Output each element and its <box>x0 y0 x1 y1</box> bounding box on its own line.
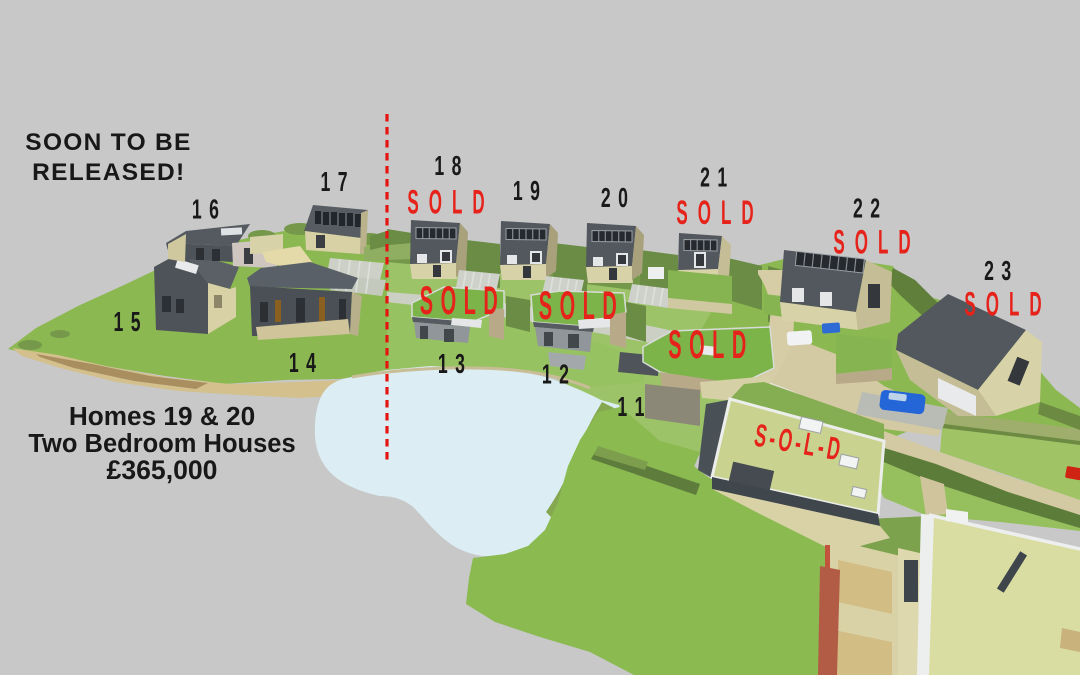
svg-text:SOLD: SOLD <box>833 223 920 261</box>
svg-text:SOLD: SOLD <box>407 183 494 221</box>
svg-text:1 5: 1 5 <box>114 306 142 337</box>
svg-text:1 1: 1 1 <box>617 391 645 422</box>
svg-text:2 0: 2 0 <box>601 182 629 213</box>
svg-text:2 2: 2 2 <box>853 192 881 223</box>
svg-text:Homes 19 & 20: Homes 19 & 20 <box>69 401 255 431</box>
svg-text:RELEASED!: RELEASED! <box>32 159 185 186</box>
svg-text:SOON TO BE: SOON TO BE <box>25 129 191 156</box>
svg-text:2 1: 2 1 <box>700 161 728 192</box>
svg-text:1 7: 1 7 <box>321 166 349 197</box>
svg-text:SOLD: SOLD <box>668 321 754 367</box>
svg-text:1 3: 1 3 <box>438 348 466 379</box>
svg-text:£365,000: £365,000 <box>107 455 218 485</box>
svg-text:SOLD: SOLD <box>676 194 763 232</box>
svg-text:SOLD: SOLD <box>964 285 1051 323</box>
svg-text:1 6: 1 6 <box>192 194 220 225</box>
svg-text:2 3: 2 3 <box>984 255 1012 286</box>
svg-text:1 2: 1 2 <box>542 358 570 389</box>
svg-text:Two Bedroom Houses: Two Bedroom Houses <box>28 430 295 458</box>
svg-text:SOLD: SOLD <box>420 277 506 323</box>
svg-text:1 8: 1 8 <box>434 150 462 181</box>
svg-text:1 9: 1 9 <box>513 175 541 206</box>
svg-text:SOLD: SOLD <box>539 282 625 328</box>
svg-text:1 4: 1 4 <box>289 347 317 378</box>
